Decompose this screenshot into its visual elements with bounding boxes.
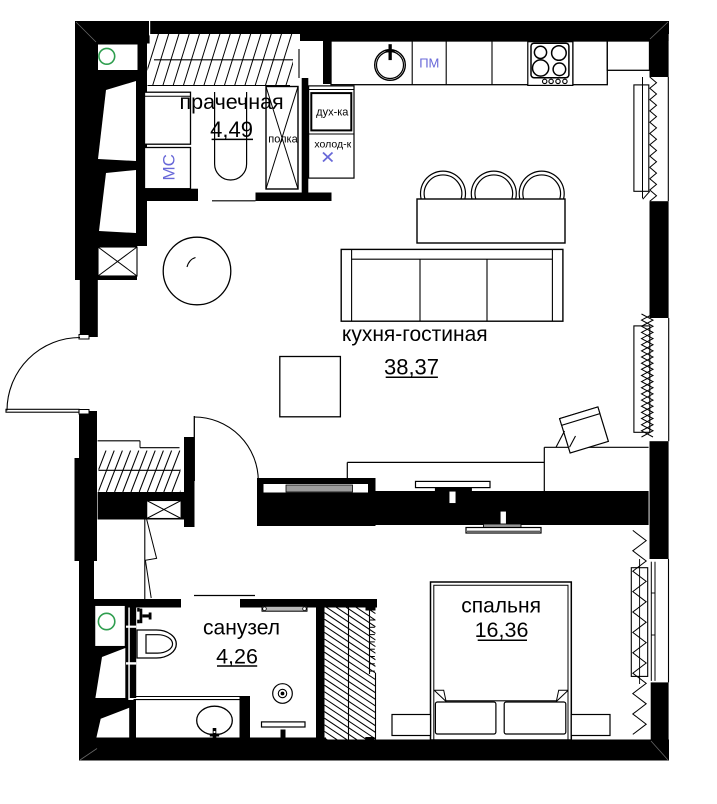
svg-text:санузел: санузел [203,617,280,640]
svg-text:4,26: 4,26 [216,644,258,668]
svg-text:полка: полка [268,134,298,146]
svg-text:ПМ: ПМ [419,55,439,70]
svg-text:кухня-гостиная: кухня-гостиная [342,323,488,346]
svg-text:МС: МС [160,154,179,180]
svg-text:4,49: 4,49 [210,117,253,142]
svg-text:38,37: 38,37 [384,354,439,379]
svg-text:прачечная: прачечная [179,90,283,114]
svg-text:дух-ка: дух-ка [316,106,349,118]
svg-text:спальня: спальня [461,595,541,618]
svg-text:16,36: 16,36 [475,618,529,642]
svg-text:холод-к: холод-к [314,138,351,150]
